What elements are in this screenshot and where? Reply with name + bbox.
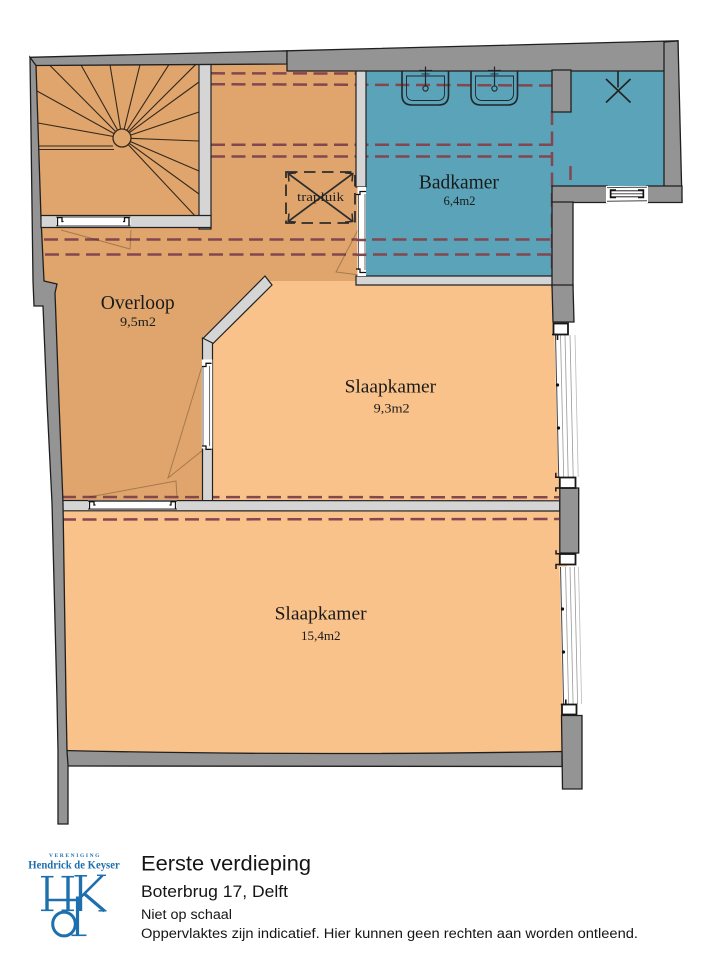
svg-text:Overloop: Overloop: [101, 292, 175, 314]
svg-text:9,3m2: 9,3m2: [374, 401, 410, 416]
svg-text:Oppervlaktes zijn indicatief.: Oppervlaktes zijn indicatief. Hier kunne…: [141, 926, 638, 941]
svg-text:Slaapkamer: Slaapkamer: [345, 377, 437, 398]
svg-text:Slaapkamer: Slaapkamer: [275, 604, 368, 625]
svg-text:Eerste verdieping: Eerste verdieping: [141, 853, 311, 876]
svg-text:Badkamer: Badkamer: [419, 172, 499, 194]
svg-text:Hendrick de Keyser: Hendrick de Keyser: [28, 859, 119, 871]
svg-text:6,4m2: 6,4m2: [444, 193, 476, 208]
svg-text:Boterbrug 17, Delft: Boterbrug 17, Delft: [141, 883, 288, 901]
svg-text:Niet op schaal: Niet op schaal: [141, 907, 232, 922]
svg-text:9,5m2: 9,5m2: [120, 314, 156, 329]
svg-text:VERENIGING: VERENIGING: [49, 853, 101, 859]
svg-text:trapluik: trapluik: [297, 189, 345, 204]
svg-text:15,4m2: 15,4m2: [301, 628, 341, 643]
